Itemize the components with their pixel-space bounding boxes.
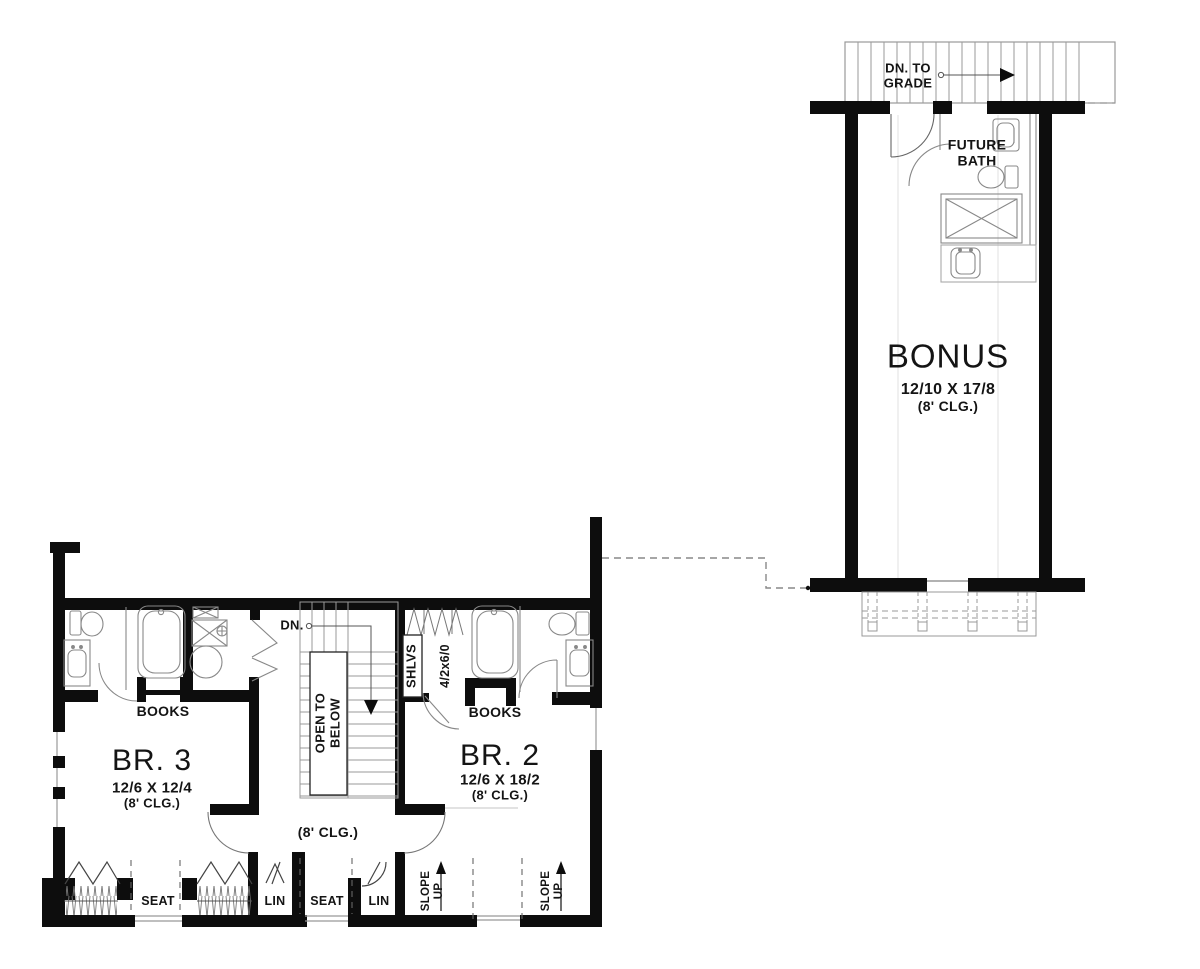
match-line [602, 558, 810, 590]
open-to-below-label: OPEN TO BELOW [313, 693, 342, 753]
laundry-sink [941, 245, 1036, 282]
slope-up-label-left: SLOPE UP [420, 871, 446, 911]
floor-plan: DN. TO GRADE FUTURE BATH BONUS 12/10 X 1… [0, 0, 1200, 969]
bath-left [64, 606, 185, 701]
bonus-room-name: BONUS [887, 339, 1009, 376]
bedroom2-ceiling: (8' CLG.) [472, 789, 528, 804]
window-mullion [53, 787, 65, 799]
bifold-door [197, 862, 252, 884]
wardrobe-rod [407, 609, 463, 635]
laundry [190, 607, 277, 681]
lin-door [266, 862, 284, 884]
floor-plan-drawing [0, 0, 1200, 969]
closet-window-size-label: 4/2x6/0 [438, 644, 452, 688]
future-bath-label: FUTURE BATH [948, 137, 1007, 168]
bath-door-swing [99, 663, 137, 701]
slope-up-label-right: SLOPE UP [540, 871, 566, 911]
deck-below-outline [862, 592, 1036, 636]
bedroom3-ceiling: (8' CLG.) [124, 797, 180, 812]
toilet [549, 612, 589, 635]
books-niche-left [146, 695, 180, 702]
lin-door [362, 862, 386, 886]
bonus-room-dimensions: 12/10 X 17/8 [901, 381, 995, 399]
shelves-label: SHLVS [405, 644, 420, 688]
seat-label-right: SEAT [310, 894, 344, 908]
window-mullion [53, 756, 65, 768]
dn-to-grade-arrow [938, 68, 1015, 82]
books-label-right: BOOKS [469, 705, 522, 721]
bonus-room-ceiling: (8' CLG.) [918, 399, 978, 415]
bedroom3-name: BR. 3 [112, 744, 192, 778]
sink [566, 640, 593, 686]
lin-label-right: LIN [368, 894, 389, 908]
dn-to-grade-label: DN. TO GRADE [884, 61, 932, 90]
bifold-door [252, 620, 277, 681]
books-niche-right [475, 688, 505, 705]
lin-label-left: LIN [264, 894, 285, 908]
dn-label: DN. [280, 619, 303, 634]
shower [941, 194, 1022, 243]
bath-door-swing [519, 660, 557, 698]
tub [138, 606, 185, 678]
seat-label-left: SEAT [141, 894, 175, 908]
hall-ceiling-label: (8' CLG.) [298, 825, 358, 841]
water-heater [190, 646, 222, 678]
bedroom2-name: BR. 2 [460, 739, 540, 773]
tub [472, 606, 518, 678]
sink [64, 640, 90, 686]
books-label-left: BOOKS [137, 704, 190, 720]
toilet [70, 611, 103, 636]
